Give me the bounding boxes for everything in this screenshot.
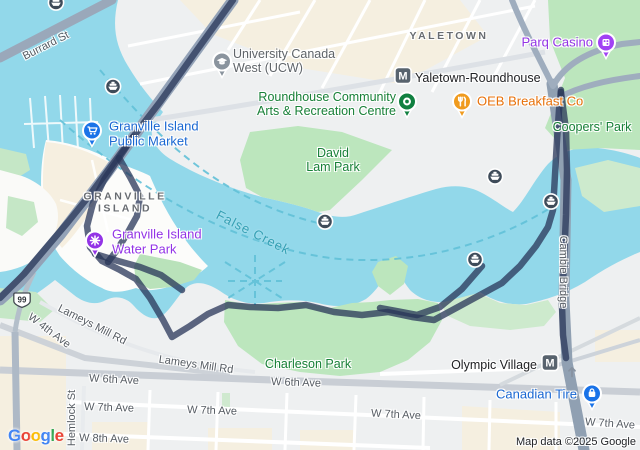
map-canvas[interactable] — [0, 0, 640, 450]
